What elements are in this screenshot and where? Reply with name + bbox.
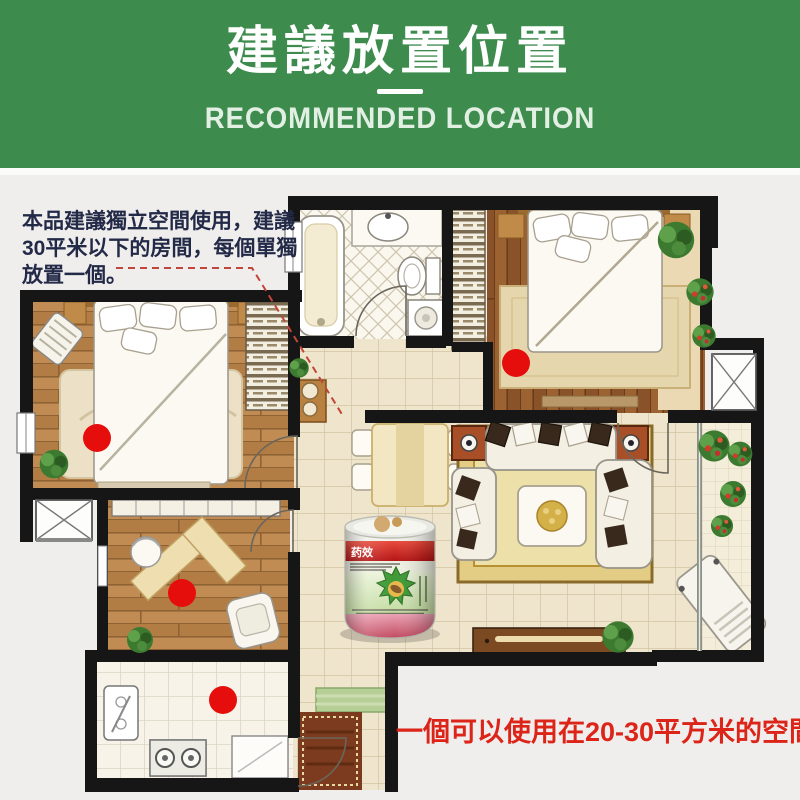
bed-bench (542, 396, 638, 407)
usage-note: 本品建議獨立空間使用，建議 30平米以下的房間，每個單獨 放置一個。 (22, 208, 302, 289)
closet (452, 210, 485, 350)
table-runner (396, 424, 424, 506)
toilet-tank (426, 258, 440, 294)
window (98, 546, 107, 586)
bay-window-right (712, 354, 756, 410)
dining-chair (352, 430, 374, 456)
floor-plan: 药效 (0, 0, 800, 800)
nightstand (498, 214, 524, 238)
dining-chair (352, 464, 374, 490)
toilet (398, 257, 426, 295)
bookshelf (112, 500, 280, 516)
placement-marker-study (168, 579, 196, 607)
placement-marker-bedroom-left (83, 424, 111, 452)
can-brand-label: 药效 (351, 545, 374, 559)
product-can: 药效 (340, 516, 440, 643)
usage-note-line-1: 本品建議獨立空間使用，建議 (22, 208, 302, 235)
usage-note-line-2: 30平米以下的房間，每個單獨 (22, 235, 302, 262)
area-caption: 一個可以使用在20-30平方米的空間 (396, 710, 796, 749)
small-mat (316, 688, 390, 712)
entry-mat (298, 712, 362, 790)
placement-marker-bedroom-right (502, 349, 530, 377)
page: 建議放置位置 RECOMMENDED LOCATION 本品建議獨立空間使用，建… (0, 0, 800, 800)
placement-marker-kitchen (209, 686, 237, 714)
usage-note-line-3: 放置一個。 (22, 262, 302, 289)
bay-window-left (36, 500, 92, 542)
